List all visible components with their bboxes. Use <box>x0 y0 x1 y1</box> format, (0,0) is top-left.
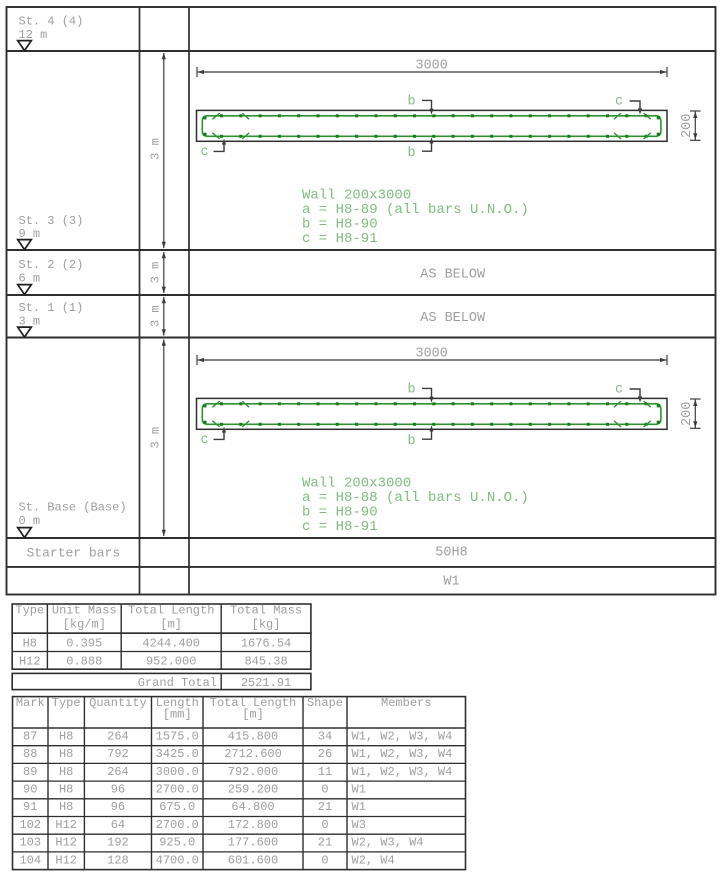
svg-text:3 m: 3 m <box>149 427 163 449</box>
svg-text:3 m: 3 m <box>149 138 163 160</box>
svg-text:H12: H12 <box>19 654 41 668</box>
svg-text:104: 104 <box>19 853 41 867</box>
svg-text:6 m: 6 m <box>19 271 41 285</box>
svg-text:177.600: 177.600 <box>228 836 278 850</box>
svg-text:St. 1 (1): St. 1 (1) <box>19 301 84 315</box>
svg-text:3000: 3000 <box>415 59 447 74</box>
svg-text:c: c <box>615 383 623 398</box>
svg-text:W3: W3 <box>352 818 366 832</box>
svg-text:0 m: 0 m <box>19 514 41 528</box>
svg-text:St. 3 (3): St. 3 (3) <box>19 214 84 228</box>
svg-text:845.38: 845.38 <box>244 654 287 668</box>
svg-text:H8: H8 <box>59 765 73 779</box>
svg-text:12 m: 12 m <box>19 28 48 42</box>
svg-text:W1, W2, W3, W4: W1, W2, W3, W4 <box>352 729 453 743</box>
svg-text:200: 200 <box>680 402 695 426</box>
svg-text:1575.0: 1575.0 <box>156 729 199 743</box>
svg-text:0: 0 <box>321 783 328 797</box>
svg-text:264: 264 <box>107 765 129 779</box>
svg-text:b: b <box>407 95 415 110</box>
svg-text:Total Length: Total Length <box>128 604 214 618</box>
svg-text:102: 102 <box>19 818 41 832</box>
svg-text:c = H8-91: c = H8-91 <box>302 519 378 535</box>
svg-text:St. 4 (4): St. 4 (4) <box>19 15 84 29</box>
svg-text:0.395: 0.395 <box>66 636 102 650</box>
svg-text:0: 0 <box>321 853 328 867</box>
svg-text:3425.0: 3425.0 <box>156 747 199 761</box>
svg-text:[kg]: [kg] <box>252 617 281 631</box>
svg-text:Type: Type <box>52 696 81 710</box>
svg-text:b: b <box>407 434 415 449</box>
svg-text:675.0: 675.0 <box>159 800 195 814</box>
svg-text:H8: H8 <box>23 636 37 650</box>
svg-text:c: c <box>201 145 209 160</box>
svg-text:952.000: 952.000 <box>146 654 196 668</box>
svg-text:172.800: 172.800 <box>228 818 278 832</box>
svg-text:3000.0: 3000.0 <box>156 765 199 779</box>
svg-text:W2, W3, W4: W2, W3, W4 <box>352 836 424 850</box>
svg-text:89: 89 <box>23 765 37 779</box>
svg-text:192: 192 <box>107 836 129 850</box>
svg-text:87: 87 <box>23 729 37 743</box>
svg-text:W2, W4: W2, W4 <box>352 853 395 867</box>
svg-text:AS BELOW: AS BELOW <box>420 268 486 283</box>
svg-text:3000: 3000 <box>415 347 447 362</box>
svg-text:4244.400: 4244.400 <box>142 636 200 650</box>
svg-text:64.800: 64.800 <box>231 800 274 814</box>
svg-text:1676.54: 1676.54 <box>241 636 291 650</box>
svg-text:[mm]: [mm] <box>163 708 192 722</box>
svg-text:W1: W1 <box>352 800 366 814</box>
svg-text:Total Mass: Total Mass <box>230 604 302 618</box>
svg-text:Grand Total: Grand Total <box>138 676 217 690</box>
svg-text:St. 2 (2): St. 2 (2) <box>19 258 84 272</box>
svg-text:W1: W1 <box>352 783 366 797</box>
svg-text:128: 128 <box>107 853 129 867</box>
svg-text:H12: H12 <box>55 818 77 832</box>
svg-text:34: 34 <box>318 729 332 743</box>
svg-text:Type: Type <box>15 604 44 618</box>
svg-text:Starter bars: Starter bars <box>27 545 121 560</box>
svg-text:[m]: [m] <box>242 708 264 722</box>
svg-text:H8: H8 <box>59 783 73 797</box>
svg-text:64: 64 <box>111 818 125 832</box>
svg-text:91: 91 <box>23 800 37 814</box>
svg-text:[m]: [m] <box>160 617 182 631</box>
svg-text:90: 90 <box>23 783 37 797</box>
svg-text:0: 0 <box>321 818 328 832</box>
svg-text:4700.0: 4700.0 <box>156 853 199 867</box>
svg-text:Quantity: Quantity <box>89 696 147 710</box>
svg-text:b: b <box>407 146 415 161</box>
svg-text:11: 11 <box>318 765 332 779</box>
svg-text:103: 103 <box>19 836 41 850</box>
svg-text:W1, W2, W3, W4: W1, W2, W3, W4 <box>352 765 453 779</box>
svg-text:H12: H12 <box>55 853 77 867</box>
svg-text:3 m: 3 m <box>149 262 163 284</box>
svg-text:Unit Mass: Unit Mass <box>52 604 117 618</box>
svg-text:W1, W2, W3, W4: W1, W2, W3, W4 <box>352 747 453 761</box>
svg-text:50H8: 50H8 <box>435 546 467 561</box>
svg-text:c = H8-91: c = H8-91 <box>302 231 378 247</box>
svg-text:792: 792 <box>107 747 129 761</box>
svg-text:2700.0: 2700.0 <box>156 818 199 832</box>
svg-text:21: 21 <box>318 836 332 850</box>
svg-text:c: c <box>201 433 209 448</box>
svg-text:H8: H8 <box>59 747 73 761</box>
svg-text:925.0: 925.0 <box>159 836 195 850</box>
svg-text:W1: W1 <box>443 575 459 590</box>
svg-text:H8: H8 <box>59 729 73 743</box>
svg-text:601.600: 601.600 <box>228 853 278 867</box>
svg-text:2700.0: 2700.0 <box>156 783 199 797</box>
svg-text:3 m: 3 m <box>149 305 163 327</box>
svg-text:H8: H8 <box>59 800 73 814</box>
svg-text:St. Base (Base): St. Base (Base) <box>19 501 127 515</box>
svg-text:c: c <box>615 95 623 110</box>
svg-text:[kg/m]: [kg/m] <box>63 617 106 631</box>
svg-text:415.800: 415.800 <box>228 729 278 743</box>
svg-text:0.888: 0.888 <box>66 654 102 668</box>
svg-text:H12: H12 <box>55 836 77 850</box>
svg-text:21: 21 <box>318 800 332 814</box>
svg-text:26: 26 <box>318 747 332 761</box>
svg-text:792.000: 792.000 <box>228 765 278 779</box>
svg-text:AS BELOW: AS BELOW <box>420 311 486 326</box>
svg-text:Shape: Shape <box>307 696 343 710</box>
svg-text:264: 264 <box>107 729 129 743</box>
svg-text:259.200: 259.200 <box>228 783 278 797</box>
svg-text:96: 96 <box>111 783 125 797</box>
svg-text:96: 96 <box>111 800 125 814</box>
svg-text:2521.91: 2521.91 <box>241 676 291 690</box>
svg-text:b: b <box>407 383 415 398</box>
svg-text:2712.600: 2712.600 <box>224 747 282 761</box>
svg-text:88: 88 <box>23 747 37 761</box>
svg-text:Mark: Mark <box>16 696 45 710</box>
svg-text:200: 200 <box>680 114 695 138</box>
svg-text:Members: Members <box>381 696 431 710</box>
